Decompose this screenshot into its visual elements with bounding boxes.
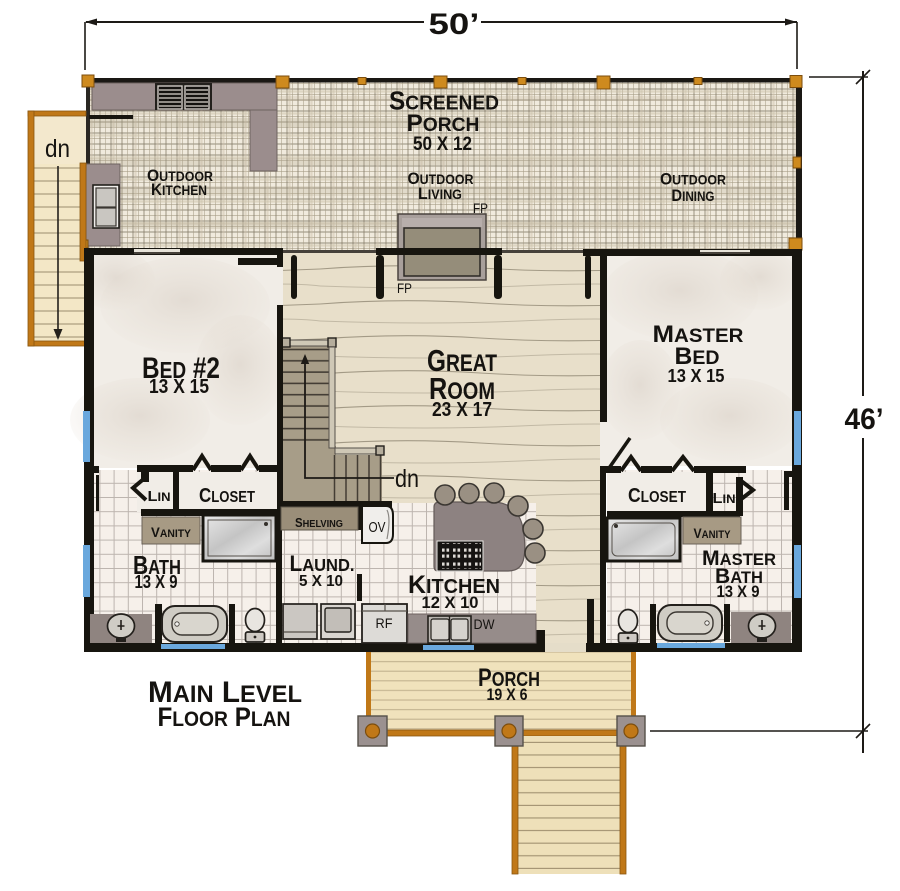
svg-text:FP: FP (473, 200, 488, 216)
svg-text:5 X 10: 5 X 10 (299, 573, 343, 590)
svg-text:LIN: LIN (713, 490, 736, 507)
svg-text:LIVING: LIVING (418, 184, 462, 203)
svg-text:DW: DW (474, 616, 496, 632)
svg-text:FLOOR PLAN: FLOOR PLAN (158, 702, 291, 732)
svg-text:SHELVING: SHELVING (295, 515, 343, 530)
svg-text:13 X 9: 13 X 9 (135, 572, 178, 592)
svg-text:RF: RF (376, 615, 393, 631)
svg-text:PORCH: PORCH (407, 110, 480, 137)
svg-text:CLOSET: CLOSET (199, 485, 255, 507)
svg-text:DINING: DINING (672, 186, 715, 205)
svg-text:46’: 46’ (845, 403, 884, 436)
svg-text:CLOSET: CLOSET (628, 485, 686, 507)
svg-text:50’: 50’ (429, 8, 480, 41)
svg-text:OUTDOOR: OUTDOOR (660, 170, 726, 189)
svg-text:OV: OV (369, 519, 386, 536)
svg-text:19 X 6: 19 X 6 (487, 685, 528, 704)
svg-text:LIN: LIN (148, 488, 171, 505)
svg-text:MASTER: MASTER (702, 547, 776, 570)
svg-text:KITCHEN: KITCHEN (151, 180, 207, 199)
svg-text:dn: dn (45, 135, 70, 163)
svg-text:MASTER: MASTER (653, 321, 744, 348)
svg-text:13 X 15: 13 X 15 (668, 366, 725, 386)
svg-text:13 X 15: 13 X 15 (149, 376, 209, 398)
svg-text:12 X 10: 12 X 10 (422, 593, 479, 612)
svg-text:13 X 9: 13 X 9 (717, 582, 760, 601)
svg-text:FP: FP (397, 280, 412, 296)
svg-text:50 X 12: 50 X 12 (413, 134, 472, 155)
svg-text:23 X 17: 23 X 17 (432, 399, 492, 421)
svg-text:dn: dn (395, 465, 419, 493)
